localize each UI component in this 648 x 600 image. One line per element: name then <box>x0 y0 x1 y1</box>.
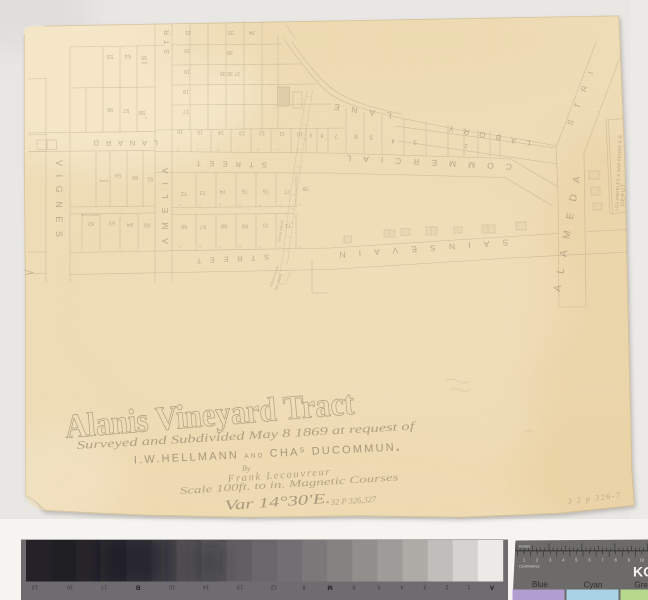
svg-text:20: 20 <box>184 47 190 53</box>
svg-text:16: 16 <box>177 128 183 134</box>
svg-text:63: 63 <box>109 220 115 226</box>
svg-text:STR: STR <box>164 25 171 54</box>
svg-text:71: 71 <box>285 222 291 228</box>
svg-text:8: 8 <box>320 132 323 138</box>
svg-text:17: 17 <box>101 584 107 590</box>
svg-text:13: 13 <box>237 584 243 590</box>
svg-text:ADOBE: ADOBE <box>99 179 108 183</box>
svg-text:58: 58 <box>139 109 145 115</box>
svg-text:KO: KO <box>633 564 648 580</box>
svg-text:5: 5 <box>369 134 373 141</box>
svg-text:15: 15 <box>197 129 203 135</box>
svg-text:60: 60 <box>132 174 138 180</box>
svg-text:57: 57 <box>123 107 129 113</box>
svg-text:69: 69 <box>242 223 248 229</box>
svg-text:59: 59 <box>115 172 121 178</box>
svg-text:3: 3 <box>424 584 427 590</box>
svg-text:19: 19 <box>184 68 190 74</box>
svg-text:76: 76 <box>263 188 269 194</box>
svg-text:37 36 35: 37 36 35 <box>220 70 240 76</box>
svg-text:A: A <box>489 584 494 591</box>
svg-text:16: 16 <box>67 584 73 590</box>
svg-text:14: 14 <box>203 584 209 590</box>
svg-text:61: 61 <box>147 176 153 182</box>
svg-text:3: 3 <box>413 138 417 145</box>
svg-text:14: 14 <box>218 129 224 135</box>
svg-text:10: 10 <box>640 558 645 563</box>
svg-text:74: 74 <box>220 188 226 194</box>
svg-text:Cyan: Cyan <box>584 581 603 590</box>
svg-text:38: 38 <box>227 49 233 55</box>
svg-text:9: 9 <box>353 584 356 590</box>
svg-text:21: 21 <box>185 29 191 35</box>
svg-text:72: 72 <box>181 190 187 196</box>
svg-text:5: 5 <box>378 584 381 590</box>
svg-text:75: 75 <box>242 188 248 194</box>
svg-text:Blue: Blue <box>532 580 549 589</box>
svg-text:4: 4 <box>401 584 404 590</box>
svg-text:77: 77 <box>284 188 290 194</box>
svg-text:66: 66 <box>181 223 187 229</box>
svg-text:70: 70 <box>263 222 269 228</box>
svg-text:7: 7 <box>334 132 338 139</box>
svg-text:62: 62 <box>88 220 94 226</box>
svg-text:Gre: Gre <box>634 581 648 590</box>
svg-text:LANARD: LANARD <box>87 139 158 148</box>
svg-text:65: 65 <box>144 222 150 228</box>
svg-text:13: 13 <box>239 130 245 136</box>
svg-text:68: 68 <box>221 223 227 229</box>
svg-text:B: B <box>135 584 140 591</box>
svg-text:8: 8 <box>303 584 306 590</box>
svg-text:15: 15 <box>169 584 175 590</box>
svg-text:12: 12 <box>259 130 265 136</box>
svg-text:10: 10 <box>297 131 303 137</box>
svg-text:55: 55 <box>141 54 147 60</box>
svg-text:78: 78 <box>303 185 309 191</box>
svg-text:39: 39 <box>228 29 234 35</box>
svg-text:53: 53 <box>107 53 113 59</box>
svg-text:13: 13 <box>32 584 38 590</box>
svg-text:Centimetres: Centimetres <box>519 565 540 569</box>
svg-text:AMELIA: AMELIA <box>160 159 170 244</box>
svg-text:67: 67 <box>200 223 206 229</box>
svg-text:2: 2 <box>464 142 468 149</box>
svg-text:DEPOT: DEPOT <box>620 183 627 206</box>
svg-text:73: 73 <box>200 189 206 195</box>
svg-text:56: 56 <box>107 106 113 112</box>
svg-text:Inches: Inches <box>519 545 530 549</box>
svg-text:64: 64 <box>127 221 133 227</box>
svg-text:6: 6 <box>354 133 358 140</box>
svg-text:4: 4 <box>391 137 395 144</box>
svg-text:ADOBE HOUSE: ADOBE HOUSE <box>81 213 100 216</box>
svg-text:54: 54 <box>125 53 131 59</box>
svg-text:60FT: 60FT <box>141 61 147 65</box>
svg-text:M: M <box>327 584 332 591</box>
svg-text:34: 34 <box>249 29 255 35</box>
svg-text:1: 1 <box>468 584 471 590</box>
svg-text:12: 12 <box>271 584 277 590</box>
svg-text:18: 18 <box>183 88 189 94</box>
svg-text:9: 9 <box>309 132 312 138</box>
svg-text:2: 2 <box>446 584 449 590</box>
svg-text:17: 17 <box>183 108 189 114</box>
svg-text:VIGNES: VIGNES <box>54 160 64 246</box>
svg-text:11: 11 <box>279 130 284 136</box>
